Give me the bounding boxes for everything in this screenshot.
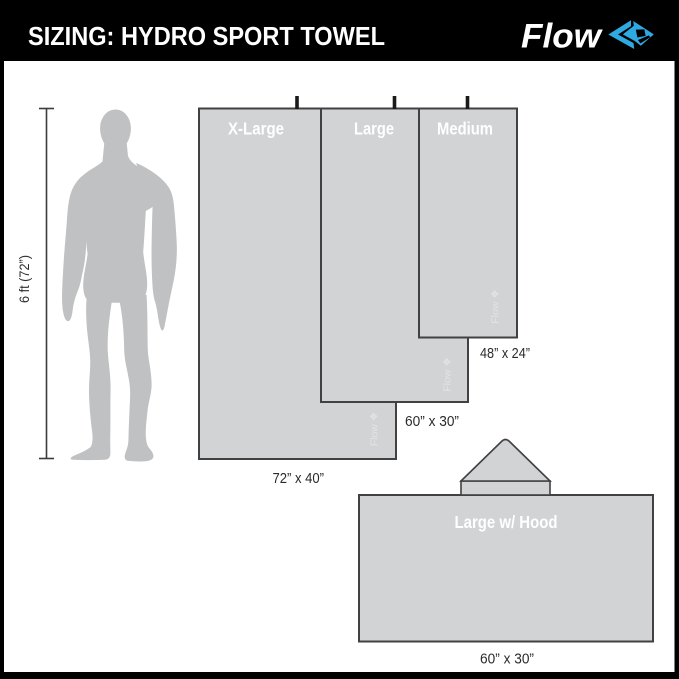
svg-text:6 ft (72”): 6 ft (72”) [16, 255, 32, 303]
svg-text:Flow ❖: Flow ❖ [442, 357, 454, 392]
svg-text:Medium: Medium [437, 119, 493, 139]
svg-text:48” x 24”: 48” x 24” [480, 346, 530, 362]
svg-text:Flow: Flow [521, 18, 604, 56]
svg-text:72” x 40”: 72” x 40” [273, 471, 325, 487]
svg-text:SIZING: HYDRO SPORT TOWEL: SIZING: HYDRO SPORT TOWEL [28, 21, 385, 51]
svg-text:Flow ❖: Flow ❖ [490, 289, 502, 324]
svg-text:60” x 30”: 60” x 30” [480, 652, 534, 668]
svg-text:X-Large: X-Large [228, 119, 284, 139]
svg-text:Flow ❖: Flow ❖ [369, 412, 381, 447]
svg-text:60” x 30”: 60” x 30” [405, 414, 459, 430]
svg-text:Large w/ Hood: Large w/ Hood [455, 512, 558, 532]
svg-text:Large: Large [354, 119, 394, 139]
